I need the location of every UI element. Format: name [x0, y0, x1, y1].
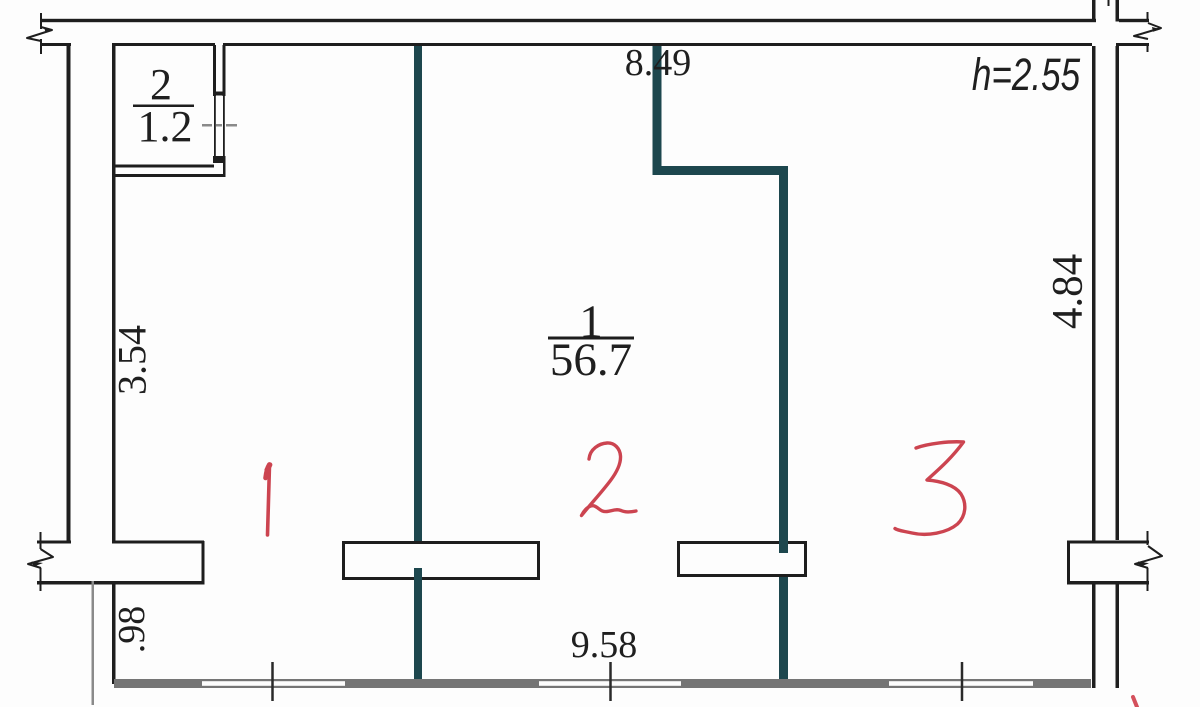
- svg-text:3.54: 3.54: [110, 325, 155, 395]
- svg-text:9.58: 9.58: [571, 624, 638, 666]
- svg-text:56.7: 56.7: [550, 334, 632, 386]
- svg-text:.98: .98: [111, 606, 153, 654]
- svg-text:1.2: 1.2: [138, 102, 193, 151]
- svg-text:8.49: 8.49: [625, 42, 692, 84]
- svg-text:4.84: 4.84: [1045, 254, 1092, 329]
- svg-text:h=2.55: h=2.55: [972, 49, 1081, 100]
